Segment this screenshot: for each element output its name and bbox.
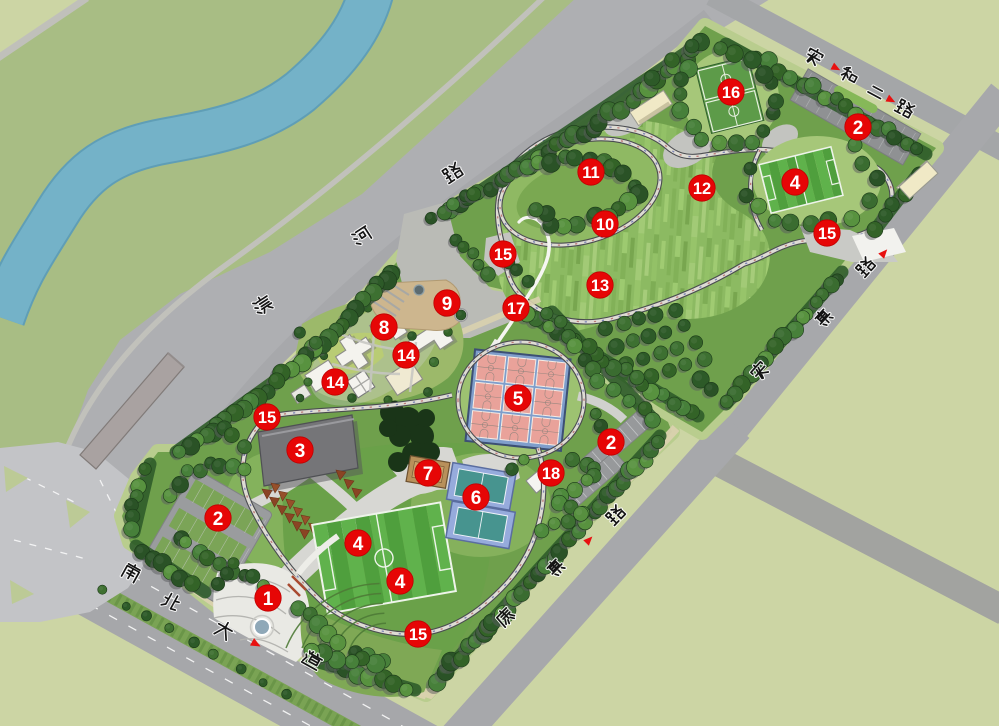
svg-text:12: 12 [693,180,711,198]
svg-text:4: 4 [395,572,406,593]
svg-text:18: 18 [542,465,560,483]
svg-text:5: 5 [513,389,524,410]
svg-text:4: 4 [353,534,364,555]
svg-text:16: 16 [722,84,740,102]
svg-text:2: 2 [606,433,617,454]
svg-text:3: 3 [295,441,306,462]
svg-text:15: 15 [258,409,276,427]
svg-text:15: 15 [494,246,512,264]
svg-text:7: 7 [423,464,434,485]
svg-text:4: 4 [790,173,801,194]
svg-text:8: 8 [379,318,390,339]
svg-text:11: 11 [582,164,599,182]
svg-text:2: 2 [213,509,224,530]
svg-text:17: 17 [507,300,525,318]
svg-text:15: 15 [409,626,427,644]
svg-text:13: 13 [591,277,609,295]
svg-text:9: 9 [442,294,453,315]
svg-text:6: 6 [471,488,482,509]
svg-text:10: 10 [596,216,614,234]
svg-text:14: 14 [397,347,416,365]
svg-text:2: 2 [853,118,864,139]
svg-text:14: 14 [326,374,345,392]
svg-text:15: 15 [818,225,836,243]
svg-text:1: 1 [263,589,274,610]
